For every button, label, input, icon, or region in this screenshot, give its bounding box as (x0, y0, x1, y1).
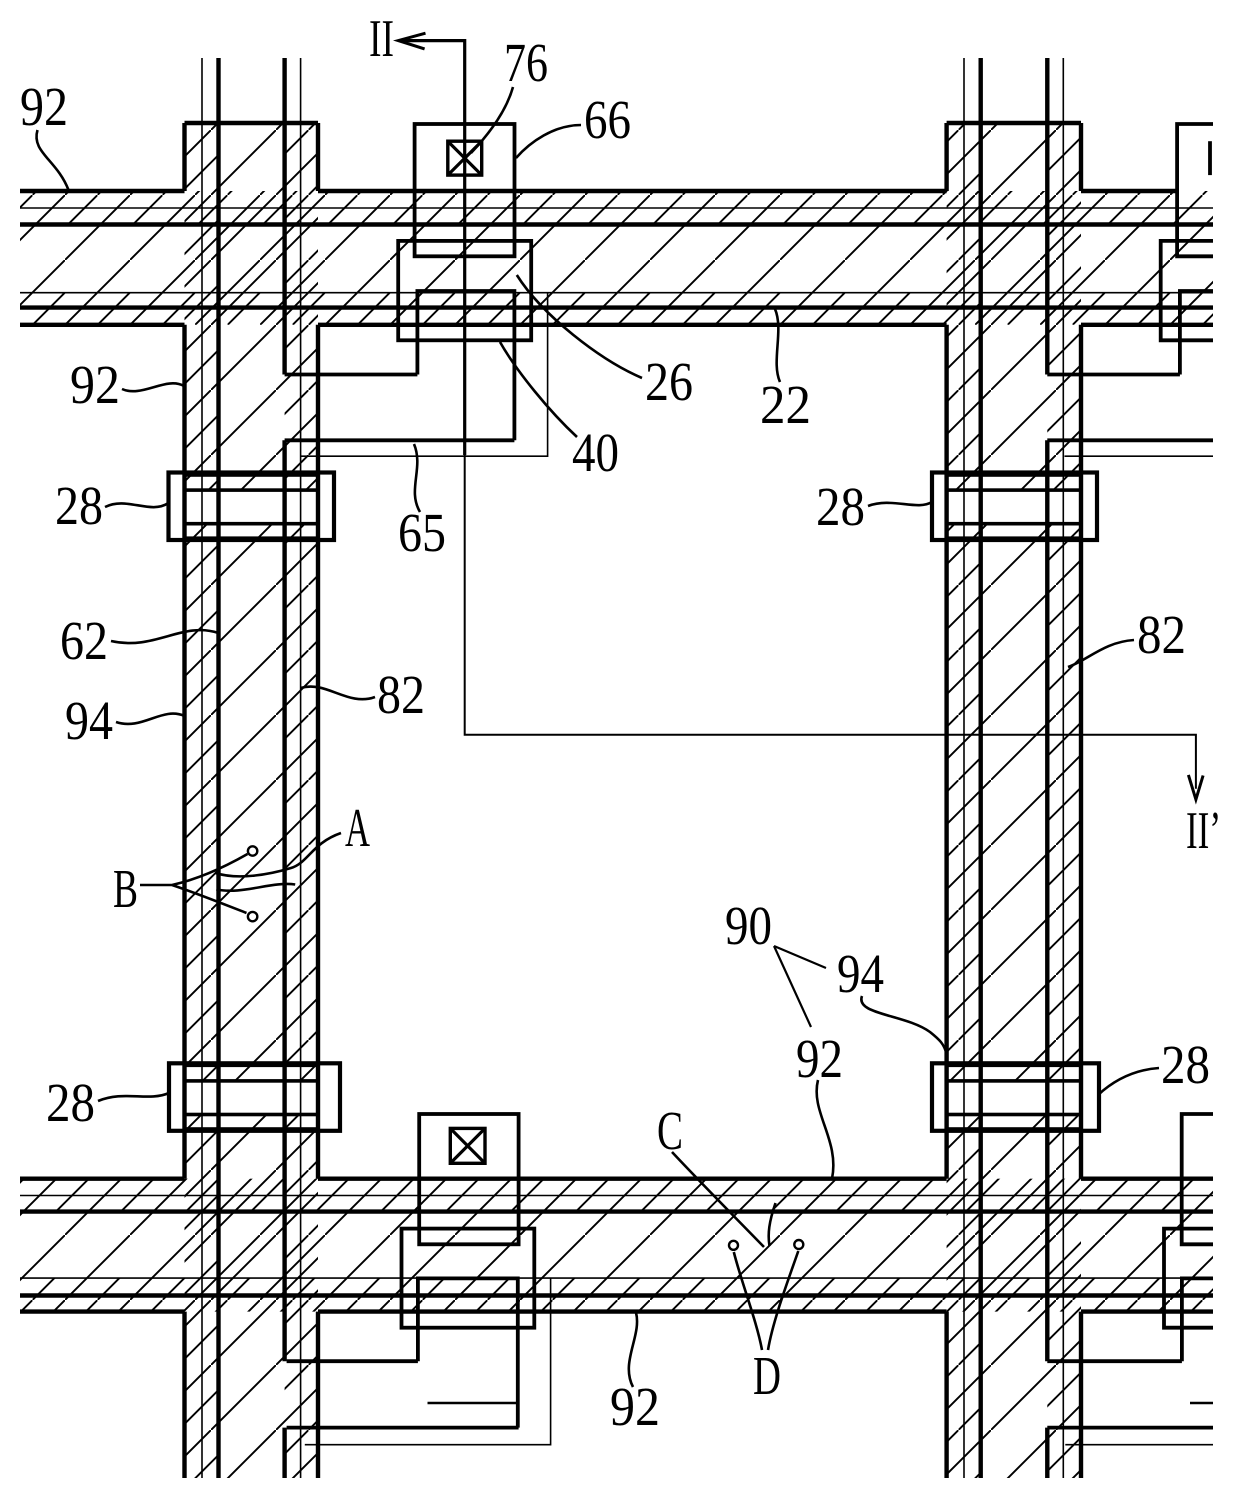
svg-text:76: 76 (504, 32, 548, 93)
svg-text:82: 82 (1137, 604, 1186, 665)
svg-text:82: 82 (377, 664, 425, 725)
svg-text:62: 62 (60, 610, 108, 671)
svg-text:28: 28 (1161, 1034, 1210, 1095)
svg-text:D: D (753, 1345, 781, 1406)
svg-text:94: 94 (65, 690, 113, 751)
svg-text:A: A (345, 797, 370, 858)
svg-text:26: 26 (645, 351, 693, 412)
svg-text:28: 28 (46, 1072, 95, 1133)
svg-text:92: 92 (20, 76, 68, 137)
svg-text:II’: II’ (1186, 802, 1221, 860)
svg-text:94: 94 (837, 943, 884, 1004)
svg-text:B: B (113, 858, 138, 919)
svg-text:66: 66 (584, 89, 631, 150)
svg-text:92: 92 (796, 1028, 843, 1089)
svg-text:C: C (657, 1100, 683, 1161)
svg-text:92: 92 (610, 1376, 660, 1437)
svg-text:90: 90 (725, 895, 772, 956)
svg-text:28: 28 (816, 476, 865, 537)
svg-text:II: II (369, 10, 394, 68)
svg-text:92: 92 (70, 354, 120, 415)
svg-text:65: 65 (398, 502, 446, 563)
svg-text:28: 28 (55, 475, 103, 536)
svg-text:40: 40 (572, 422, 619, 483)
svg-text:22: 22 (760, 374, 811, 435)
